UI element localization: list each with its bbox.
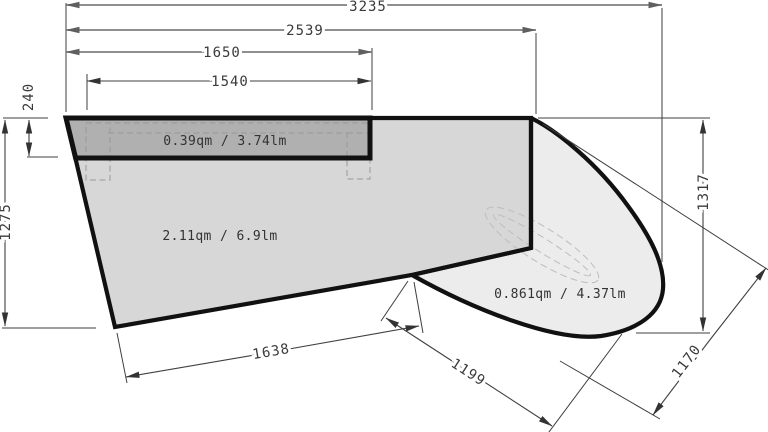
dim-overall-width: 3235 (66, 0, 662, 15)
counter-area-label: 0.39qm / 3.74lm (163, 134, 286, 149)
dim-counter-inner-width: 1540 (87, 74, 371, 90)
dim-label-240: 240 (21, 83, 37, 111)
dim-label-1650: 1650 (203, 45, 241, 61)
dim-bottom-edge: 1638 (126, 326, 419, 377)
dim-right-diagonal: 1170 (653, 268, 766, 415)
ext-1638-right (414, 282, 423, 333)
dim-right-height: 1317 (696, 120, 712, 331)
ext-1170-lower (560, 361, 660, 419)
dim-label-2539: 2539 (286, 23, 324, 39)
dim-label-1275: 1275 (0, 203, 14, 241)
dim-upper-width: 2539 (66, 23, 536, 39)
dim-label-1638: 1638 (251, 341, 291, 363)
dim-label-1540: 1540 (211, 74, 249, 90)
dim-label-1317: 1317 (696, 173, 712, 211)
curved-area-label: 0.861qm / 4.37lm (494, 287, 626, 302)
dim-notch-diagonal: 1199 (386, 318, 552, 426)
dim-counter-outer-width: 1650 (66, 45, 372, 61)
dim-counter-depth: 240 (21, 83, 37, 156)
dim-label-1170: 1170 (669, 342, 705, 382)
cad-drawing: 3235 2539 1650 1540 240 (0, 0, 768, 432)
ext-1199-lower (546, 334, 622, 432)
main-area-label: 2.11qm / 6.9lm (162, 229, 277, 244)
dim-left-height: 1275 (0, 120, 14, 326)
ext-1199-upper (381, 281, 408, 321)
ext-1638-left (117, 333, 127, 383)
cad-canvas: 3235 2539 1650 1540 240 (0, 0, 768, 432)
shape-fills (66, 118, 663, 337)
dim-label-1199: 1199 (448, 356, 488, 390)
dim-label-3235: 3235 (349, 0, 387, 15)
